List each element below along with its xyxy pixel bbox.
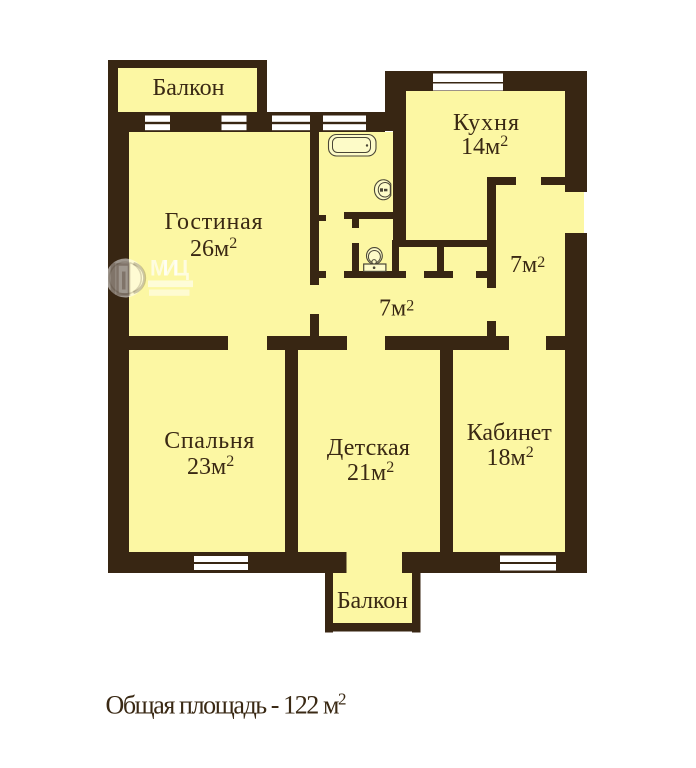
svg-text:Балкон: Балкон <box>337 588 408 614</box>
svg-text:МИЦ: МИЦ <box>150 256 189 281</box>
svg-text:Гостиная: Гостиная <box>165 209 263 235</box>
svg-text:Спальня: Спальня <box>164 428 254 454</box>
svg-text:Кабинет: Кабинет <box>467 420 553 446</box>
svg-text:Детская: Детская <box>327 435 410 461</box>
svg-text:Кухня: Кухня <box>453 110 519 136</box>
svg-text:Балкон: Балкон <box>153 75 225 101</box>
svg-text:Общая площадь - 122 м2: Общая площадь - 122 м2 <box>106 690 347 720</box>
